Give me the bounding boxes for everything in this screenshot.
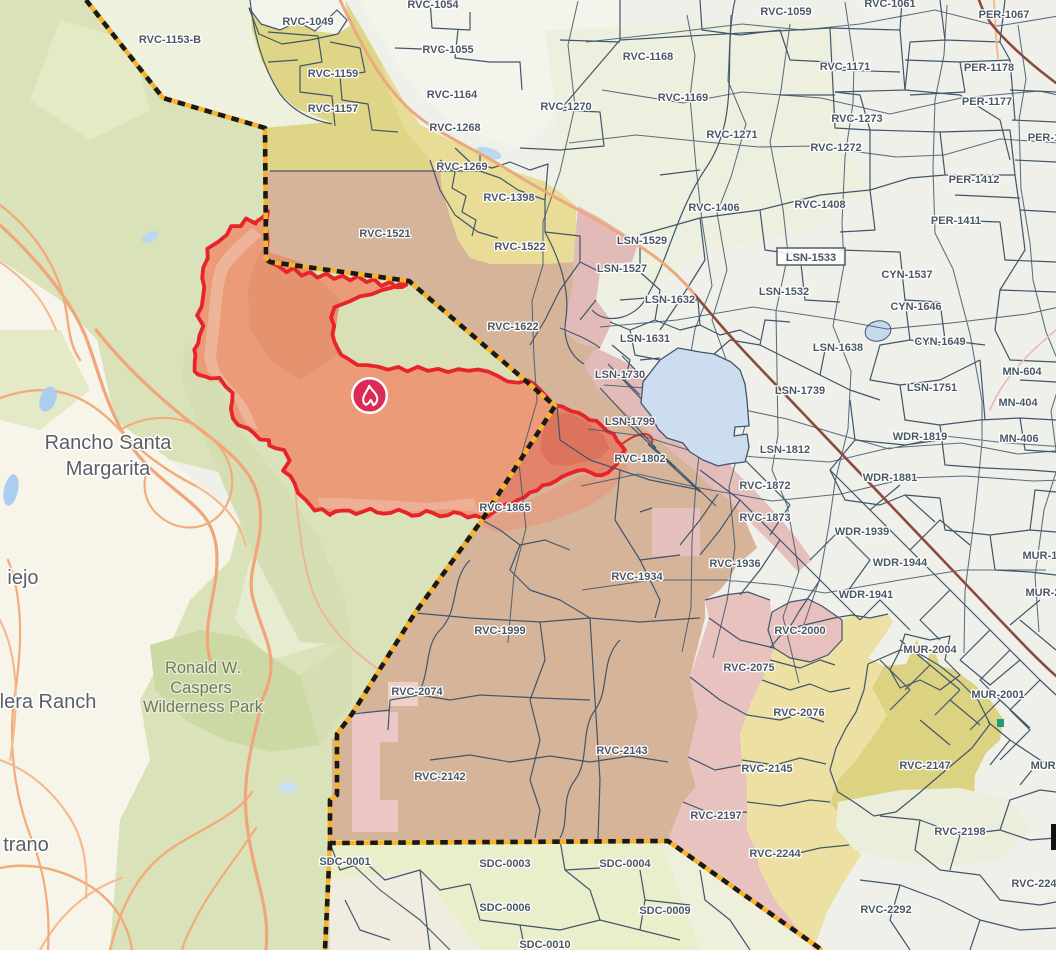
- svg-text:Rancho Santa: Rancho Santa: [45, 432, 173, 454]
- svg-text:MUR-19: MUR-19: [1023, 550, 1056, 562]
- svg-text:RVC-2197: RVC-2197: [690, 810, 741, 822]
- svg-text:RVC-1059: RVC-1059: [760, 6, 811, 18]
- svg-text:LSN-1631: LSN-1631: [620, 333, 670, 345]
- svg-text:WDR-1819: WDR-1819: [893, 431, 947, 443]
- svg-text:RVC-1159: RVC-1159: [308, 68, 359, 80]
- svg-text:RVC-2076: RVC-2076: [773, 707, 824, 719]
- svg-text:WDR-1944: WDR-1944: [873, 557, 928, 569]
- svg-text:RVC-1153-B: RVC-1153-B: [139, 34, 201, 46]
- svg-text:RVC-2145: RVC-2145: [741, 763, 792, 775]
- svg-text:RVC-1873: RVC-1873: [739, 512, 790, 524]
- svg-text:MN-406: MN-406: [999, 433, 1038, 445]
- svg-text:RVC-2247: RVC-2247: [1011, 878, 1056, 890]
- svg-text:SDC-0006: SDC-0006: [479, 902, 530, 914]
- svg-text:RVC-1055: RVC-1055: [422, 44, 473, 56]
- svg-text:RVC-1171: RVC-1171: [820, 61, 871, 73]
- svg-text:Caspers: Caspers: [170, 679, 231, 697]
- svg-text:WDR-1939: WDR-1939: [835, 526, 889, 538]
- svg-text:RVC-1999: RVC-1999: [474, 625, 525, 637]
- svg-text:MUR-2: MUR-2: [1031, 760, 1056, 772]
- svg-text:MUR-2004: MUR-2004: [903, 644, 957, 656]
- svg-text:RVC-1521: RVC-1521: [359, 228, 410, 240]
- svg-text:SDC-0003: SDC-0003: [479, 858, 530, 870]
- svg-text:RVC-1049: RVC-1049: [282, 16, 333, 28]
- svg-text:lera Ranch: lera Ranch: [0, 691, 96, 713]
- svg-text:RVC-1802: RVC-1802: [614, 453, 665, 465]
- svg-text:MUR-2001: MUR-2001: [971, 689, 1024, 701]
- svg-text:RVC-1268: RVC-1268: [429, 122, 480, 134]
- svg-text:MN-604: MN-604: [1002, 366, 1042, 378]
- svg-text:RVC-1164: RVC-1164: [427, 89, 478, 101]
- svg-text:PER-1177: PER-1177: [962, 96, 1012, 108]
- svg-text:SDC-0001: SDC-0001: [319, 856, 370, 868]
- svg-text:RVC-2147: RVC-2147: [899, 760, 950, 772]
- svg-text:LSN-1632: LSN-1632: [645, 294, 695, 306]
- svg-text:LSN-1533: LSN-1533: [786, 252, 836, 264]
- svg-text:PER-1178: PER-1178: [964, 62, 1014, 74]
- svg-text:LSN-1739: LSN-1739: [775, 385, 825, 397]
- svg-text:RVC-1269: RVC-1269: [436, 161, 487, 173]
- svg-text:PER-1411: PER-1411: [931, 215, 981, 227]
- svg-text:RVC-1272: RVC-1272: [810, 142, 861, 154]
- svg-text:RVC-1273: RVC-1273: [831, 113, 882, 125]
- svg-text:Wilderness Park: Wilderness Park: [143, 698, 264, 716]
- svg-text:RVC-1936: RVC-1936: [709, 558, 760, 570]
- svg-text:RVC-1398: RVC-1398: [483, 192, 534, 204]
- svg-text:RVC-2074: RVC-2074: [391, 686, 443, 698]
- svg-text:CYN-1649: CYN-1649: [914, 336, 965, 348]
- svg-text:LSN-1638: LSN-1638: [813, 342, 863, 354]
- svg-text:LSN-1529: LSN-1529: [617, 235, 667, 247]
- svg-text:LSN-1751: LSN-1751: [907, 382, 957, 394]
- svg-text:RVC-1622: RVC-1622: [487, 321, 538, 333]
- svg-text:CYN-1646: CYN-1646: [890, 301, 941, 313]
- svg-text:LSN-1527: LSN-1527: [597, 263, 647, 275]
- svg-text:RVC-2244: RVC-2244: [749, 848, 801, 860]
- svg-text:RVC-2143: RVC-2143: [596, 745, 647, 757]
- svg-text:LSN-1532: LSN-1532: [759, 286, 809, 298]
- svg-text:RVC-2198: RVC-2198: [934, 826, 985, 838]
- svg-text:RVC-1270: RVC-1270: [540, 101, 591, 113]
- svg-text:WDR-1881: WDR-1881: [863, 472, 917, 484]
- svg-text:PER-1412: PER-1412: [949, 174, 1000, 186]
- svg-text:RVC-2075: RVC-2075: [723, 662, 774, 674]
- svg-text:RVC-1408: RVC-1408: [794, 199, 845, 211]
- svg-text:SDC-0004: SDC-0004: [599, 858, 651, 870]
- svg-text:Margarita: Margarita: [66, 458, 151, 480]
- svg-text:RVC-1934: RVC-1934: [611, 571, 663, 583]
- svg-text:SDC-0009: SDC-0009: [639, 905, 690, 917]
- svg-text:RVC-1406: RVC-1406: [688, 202, 739, 214]
- svg-text:RVC-2000: RVC-2000: [774, 625, 825, 637]
- svg-text:PER-1067: PER-1067: [979, 9, 1030, 21]
- svg-text:PER-12: PER-12: [1028, 132, 1056, 144]
- svg-text:RVC-1872: RVC-1872: [739, 480, 790, 492]
- svg-text:LSN-1730: LSN-1730: [595, 369, 645, 381]
- svg-text:LSN-1812: LSN-1812: [760, 444, 810, 456]
- svg-text:RVC-1061: RVC-1061: [864, 0, 915, 10]
- svg-text:MUR-20: MUR-20: [1026, 587, 1056, 599]
- svg-text:trano: trano: [3, 834, 49, 856]
- svg-text:RVC-1522: RVC-1522: [494, 241, 545, 253]
- svg-text:RVC-1169: RVC-1169: [658, 92, 709, 104]
- svg-text:LSN-1799: LSN-1799: [605, 416, 655, 428]
- svg-text:RVC-1168: RVC-1168: [623, 51, 674, 63]
- svg-text:iejo: iejo: [7, 567, 38, 589]
- svg-text:RVC-1054: RVC-1054: [407, 0, 459, 11]
- svg-text:Ronald W.: Ronald W.: [165, 659, 241, 677]
- svg-text:RVC-1865: RVC-1865: [479, 502, 530, 514]
- svg-text:SDC-0010: SDC-0010: [519, 939, 570, 950]
- svg-text:CYN-1537: CYN-1537: [881, 269, 932, 281]
- svg-text:MN-404: MN-404: [998, 397, 1038, 409]
- svg-text:WDR-1941: WDR-1941: [839, 589, 893, 601]
- svg-text:RVC-2292: RVC-2292: [860, 904, 911, 916]
- svg-text:RVC-1157: RVC-1157: [308, 103, 359, 115]
- svg-text:RVC-2142: RVC-2142: [414, 771, 465, 783]
- svg-text:RVC-1271: RVC-1271: [706, 129, 757, 141]
